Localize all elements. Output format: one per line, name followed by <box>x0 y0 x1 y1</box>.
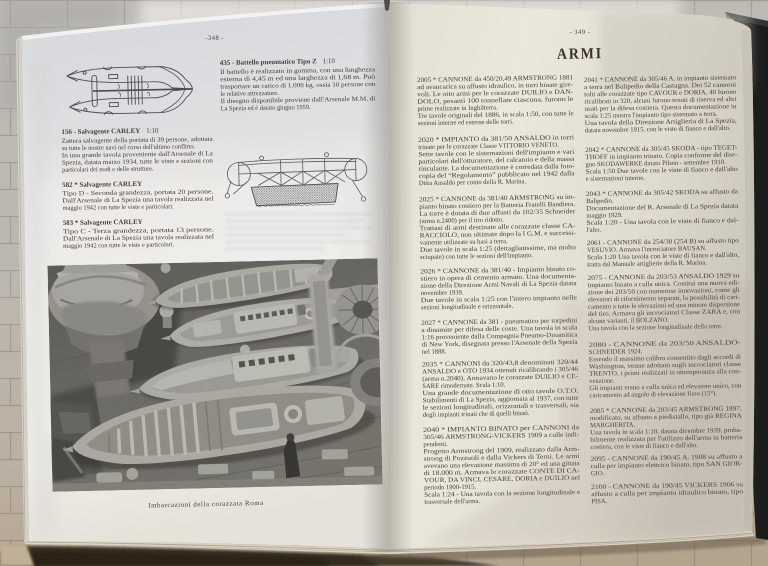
svg-text:trasversale dell'arma.: trasversale dell'arma. <box>424 498 480 506</box>
svg-text:e sistemazioni interne.: e sistemazioni interne. <box>586 175 646 183</box>
svg-text:nel 1888.: nel 1888. <box>422 348 447 355</box>
svg-text:l'alto.: l'alto. <box>587 227 602 234</box>
svg-text:particolari dei nodi e delle s: particolari dei nodi e delle strutture. <box>62 166 154 174</box>
svg-text:- 349 -: - 349 - <box>569 29 590 36</box>
svg-text:-348 -: -348 - <box>205 35 224 42</box>
svg-text:ARMI: ARMI <box>557 45 603 63</box>
svg-text:583 * Salvagente CARLEY: 583 * Salvagente CARLEY <box>63 219 143 227</box>
svg-text:582 * Salvagente CARLEY: 582 * Salvagente CARLEY <box>62 181 142 189</box>
